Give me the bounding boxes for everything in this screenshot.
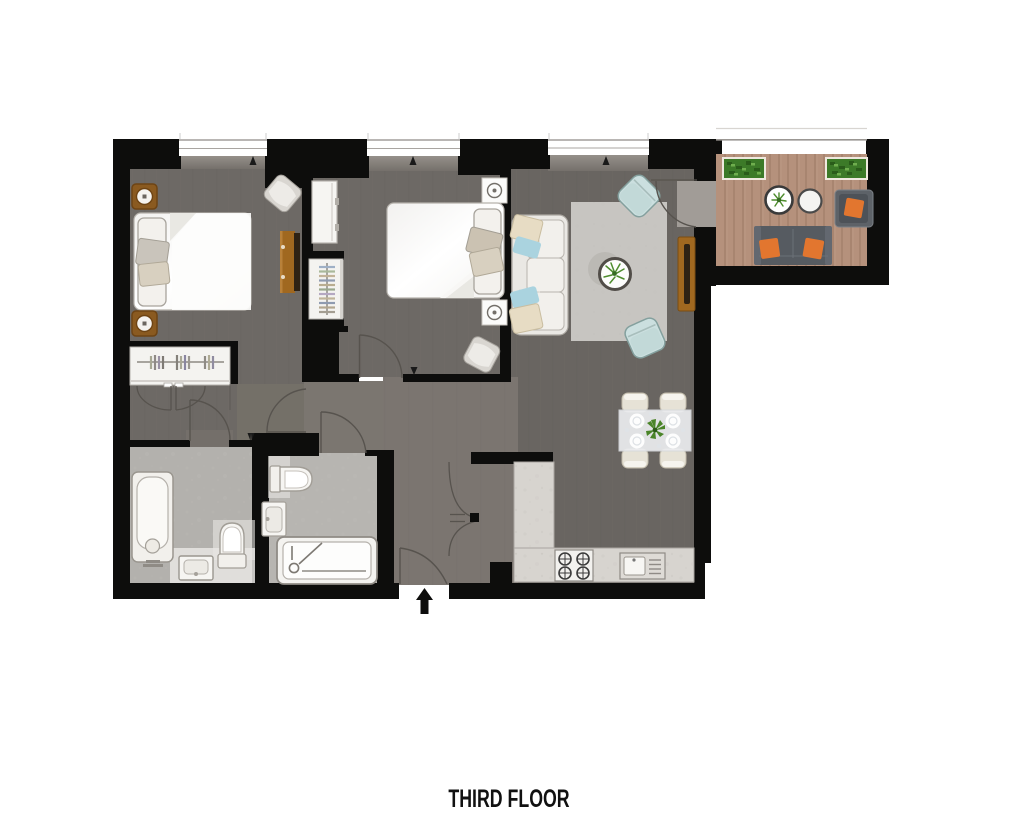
svg-text:THIRD FLOOR: THIRD FLOOR (448, 784, 570, 813)
